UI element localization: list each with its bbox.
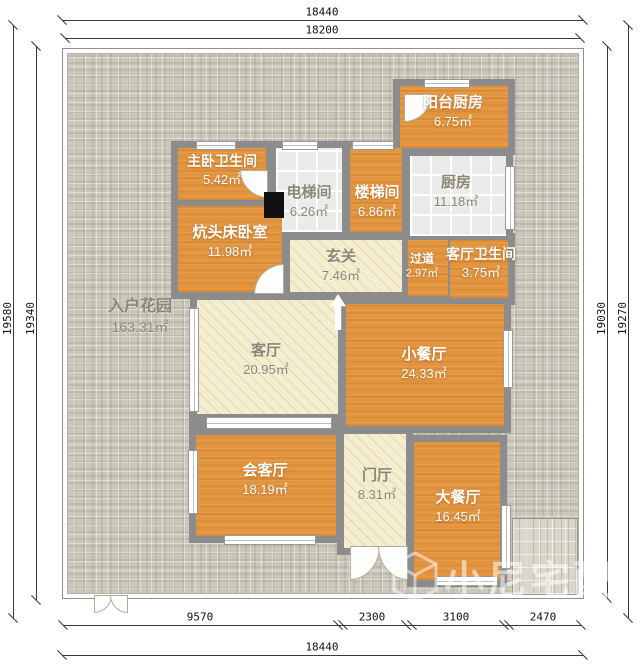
dim-bottom-3: 3100 (443, 611, 470, 624)
room-small-dining (346, 304, 504, 426)
dim-bottom-4: 2470 (530, 611, 557, 624)
garden-gate-right (110, 595, 128, 613)
dim-bottom-total: 18440 (305, 641, 338, 654)
room-living-bathroom (450, 240, 508, 298)
window (436, 576, 498, 586)
dim-top-outer: 18440 (305, 6, 338, 19)
window (501, 505, 511, 569)
dim-bottom-1: 9570 (187, 611, 214, 624)
room-meeting (196, 435, 336, 536)
dim-left-inner: 19340 (24, 302, 37, 335)
room-stairwell (350, 148, 402, 232)
window-partition (206, 417, 332, 429)
patio-tiles (512, 518, 578, 595)
room-foyer (344, 434, 406, 548)
window (224, 535, 316, 545)
dim-top-inner: 18200 (305, 24, 338, 37)
window (189, 308, 199, 412)
room-living (197, 300, 338, 414)
window (505, 166, 515, 230)
dim-line (65, 38, 580, 39)
floor-plan: 阳台厨房6.75㎡ 厨房11.18㎡ 主卧卫生间5.42㎡ 电梯间6.26㎡ 楼… (0, 0, 640, 671)
dim-line (62, 20, 583, 21)
room-corridor (408, 240, 448, 296)
window (196, 141, 236, 150)
dim-bottom-2: 2300 (359, 611, 386, 624)
window (282, 141, 318, 150)
window (424, 79, 470, 88)
room-kitchen (410, 156, 506, 236)
column-block (264, 192, 284, 218)
window (188, 450, 198, 514)
dim-left-outer: 19580 (1, 302, 14, 335)
dim-right-outer: 19270 (616, 302, 629, 335)
room-elevator (276, 148, 342, 232)
dim-line (62, 655, 583, 656)
dim-right-inner: 19030 (595, 302, 608, 335)
window (503, 330, 513, 388)
room-entry-hall (290, 240, 402, 292)
window (352, 141, 394, 150)
room-big-dining (414, 442, 500, 580)
